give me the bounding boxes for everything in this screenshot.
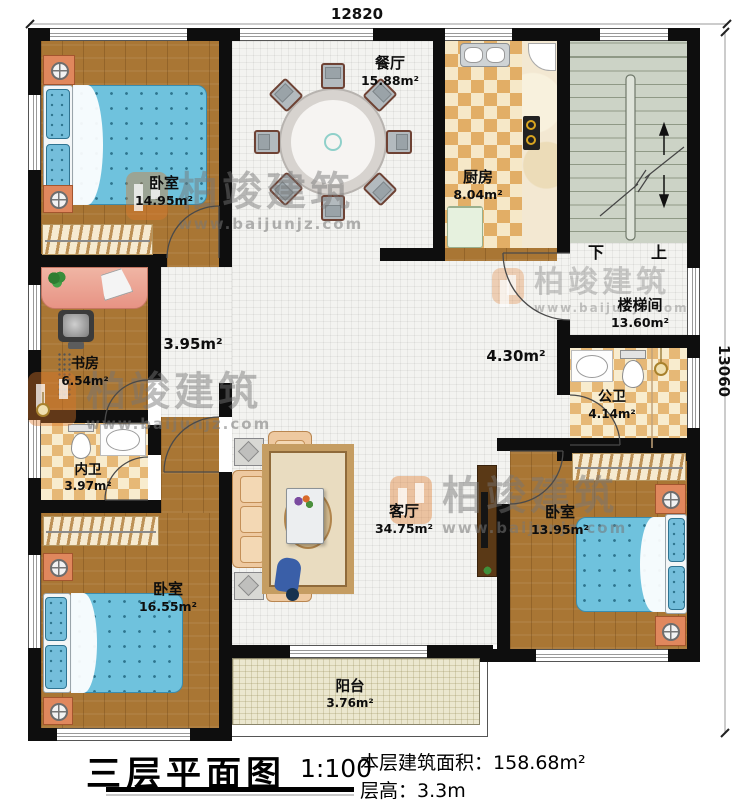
floor-plan: 12820 13060	[0, 0, 750, 812]
private-bath-label: 内卫3.97m²	[64, 462, 111, 494]
stairs-down-label: 下	[588, 243, 604, 263]
stair-break-line	[600, 147, 684, 216]
balcony-label: 阳台3.76m²	[326, 678, 373, 711]
bedroom2-label: 卧室16.55m²	[139, 580, 197, 614]
stair-rail	[626, 75, 635, 240]
public-bath-label: 公卫4.14m²	[588, 389, 635, 422]
bedroom3-label: 卧室13.95m²	[531, 503, 589, 537]
dimension-right: 13060	[715, 345, 733, 397]
dimension-top: 12820	[331, 5, 383, 23]
shower-head-icon	[37, 404, 49, 416]
hall-area-label: 4.30m²	[486, 347, 545, 366]
shower-head-icon	[655, 363, 667, 375]
annotation-overlay: 12820 13060	[0, 0, 750, 812]
bedroom1-label: 卧室14.95m²	[135, 174, 193, 208]
kitchen-label: 厨房8.04m²	[453, 168, 502, 202]
dining-label: 餐厅15.88m²	[361, 54, 419, 88]
stairwell-label: 楼梯间13.60m²	[611, 296, 669, 330]
living-label: 客厅34.75m²	[375, 502, 433, 536]
study-label: 书房6.54m²	[61, 356, 108, 389]
corridor-area-label: 3.95m²	[163, 335, 222, 354]
stairs-up-label: 上	[651, 243, 667, 263]
